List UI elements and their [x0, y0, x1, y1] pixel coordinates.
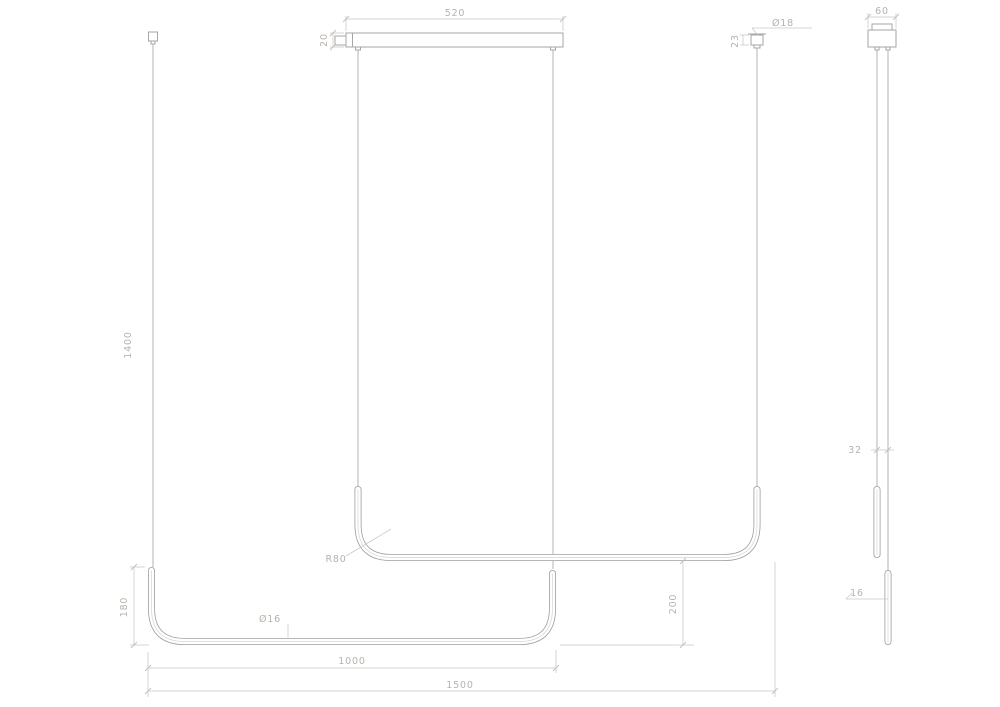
dim-side-canopy-width-label: 60 — [875, 6, 889, 17]
dimension-tube-diameter: Ø16 — [259, 614, 288, 638]
dimension-mount-diameter: Ø18 — [752, 18, 812, 35]
dim-tube-offset-label: 200 — [668, 594, 679, 615]
dimension-canopy-width: 520 — [343, 8, 566, 31]
canopy-side — [868, 24, 896, 50]
dim-bend-radius-label: R80 — [325, 554, 346, 565]
dim-lamp-length-label: 1000 — [338, 656, 365, 667]
dim-drop-height-label: 1400 — [123, 331, 134, 358]
lower-lamp-tube — [152, 571, 553, 642]
canopy-front — [335, 33, 563, 50]
dim-side-tube-width-label: 16 — [850, 588, 864, 599]
dimension-upturn-height: 180 — [119, 564, 149, 648]
upper-lamp-tube — [358, 490, 757, 558]
pendant-lamp-technical-drawing: 520 20 Ø18 23 1400 — [0, 0, 1000, 707]
dimension-side-tube-gap: 32 — [848, 445, 894, 456]
dimension-tube-offset: 200 — [560, 558, 694, 648]
dimension-lamp-length: 1000 — [145, 650, 559, 697]
dim-mount-height-label: 23 — [730, 34, 741, 48]
dim-canopy-width-label: 520 — [445, 8, 466, 19]
dimension-mount-height: 23 — [730, 34, 749, 48]
dim-tube-diameter-label: Ø16 — [259, 614, 281, 625]
dimension-side-tube-width: 16 — [846, 588, 888, 599]
ceiling-mount-left — [149, 32, 158, 44]
technical-drawing-page: 520 20 Ø18 23 1400 — [0, 0, 1000, 707]
dim-side-tube-gap-label: 32 — [848, 445, 862, 456]
dim-total-width-label: 1500 — [446, 680, 473, 691]
ceiling-mount-right — [748, 34, 766, 48]
dim-mount-diameter-label: Ø18 — [772, 18, 794, 29]
dim-canopy-height-label: 20 — [319, 33, 330, 47]
dim-upturn-height-label: 180 — [119, 597, 130, 618]
